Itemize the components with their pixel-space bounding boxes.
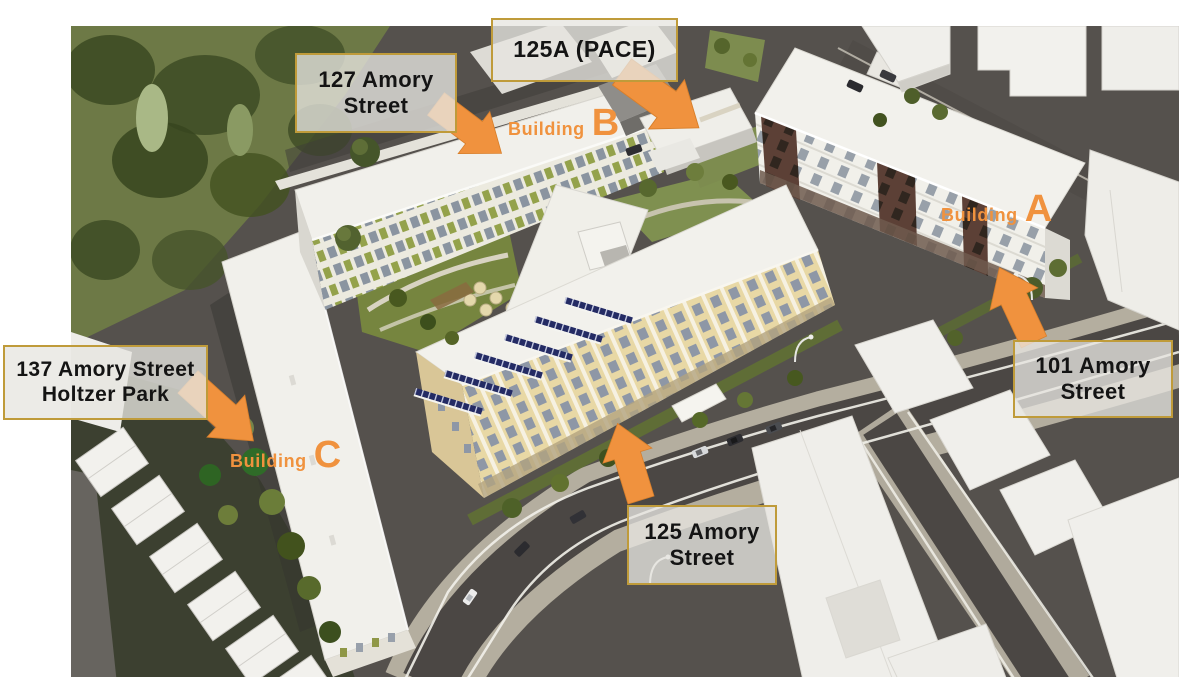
callout-127-amory: 127 Amory Street [295,53,457,133]
callout-line: Holtzer Park [5,383,206,408]
building-tag-letter: B [592,104,619,142]
building-tag-word: Building [941,205,1018,226]
building-tag-letter: C [314,436,341,474]
callout-125-amory: 125 Amory Street [627,505,777,585]
callout-line: 125A (PACE) [493,36,676,63]
callout-line: Street [1015,379,1171,405]
callout-line: Street [629,545,775,571]
building-tag-letter: A [1025,190,1052,228]
aerial-rendering: 125A (PACE) 127 Amory Street 101 Amory S… [0,0,1179,694]
callout-line: 101 Amory [1015,353,1171,379]
building-a-tag: Building A [941,190,1052,228]
callout-125a-pace: 125A (PACE) [491,18,678,82]
callout-line: Street [297,93,455,119]
callout-line: 125 Amory [629,519,775,545]
building-c-tag: Building C [230,436,341,474]
callout-line: 127 Amory [297,67,455,93]
building-tag-word: Building [508,119,585,140]
callout-137-amory-holtzer: 137 Amory Street Holtzer Park [3,345,208,420]
callout-101-amory: 101 Amory Street [1013,340,1173,418]
building-b-tag: Building B [508,104,619,142]
callout-line: 137 Amory Street [5,358,206,383]
building-tag-word: Building [230,451,307,472]
